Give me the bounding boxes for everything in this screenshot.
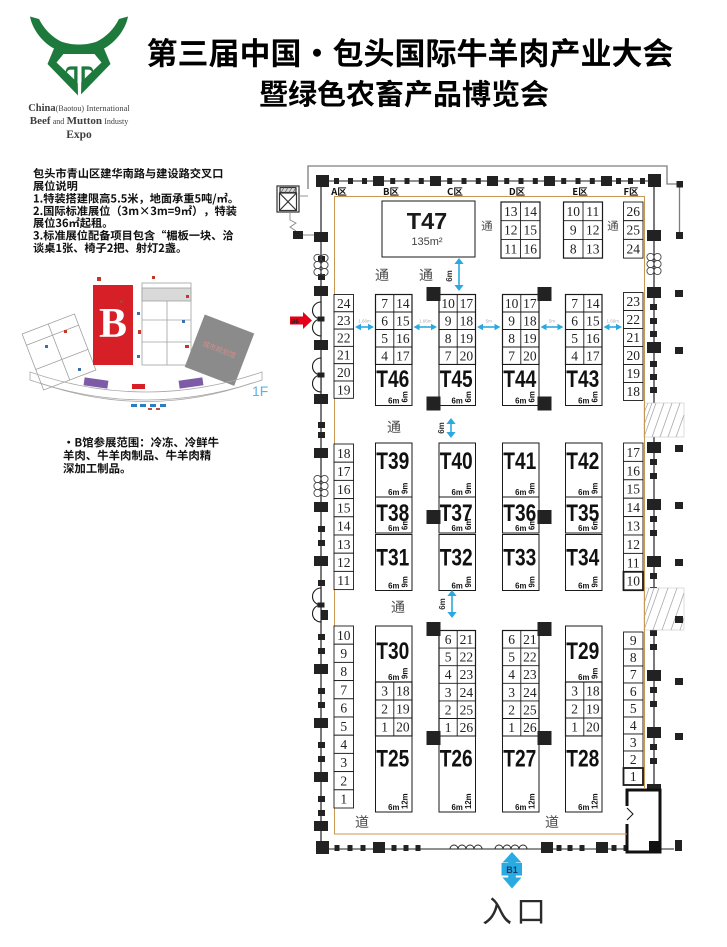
svg-text:10: 10 bbox=[566, 204, 580, 219]
svg-text:T26: T26 bbox=[440, 746, 473, 773]
svg-text:6m: 6m bbox=[388, 582, 399, 591]
svg-text:9m: 9m bbox=[528, 483, 537, 494]
svg-text:7: 7 bbox=[571, 296, 578, 311]
svg-text:12m: 12m bbox=[528, 793, 537, 809]
svg-text:7: 7 bbox=[381, 296, 388, 311]
svg-text:8: 8 bbox=[508, 331, 515, 346]
svg-text:9m: 9m bbox=[591, 668, 600, 679]
svg-text:7: 7 bbox=[445, 348, 452, 363]
svg-text:8: 8 bbox=[630, 650, 637, 665]
svg-text:23: 23 bbox=[337, 313, 351, 328]
svg-text:3: 3 bbox=[381, 684, 388, 699]
svg-text:1.66m: 1.66m bbox=[607, 319, 620, 324]
svg-text:6m: 6m bbox=[515, 488, 526, 497]
svg-text:14: 14 bbox=[337, 519, 351, 534]
svg-text:20: 20 bbox=[396, 720, 410, 735]
svg-text:21: 21 bbox=[460, 632, 474, 647]
svg-text:T44: T44 bbox=[503, 366, 537, 393]
svg-text:21: 21 bbox=[337, 348, 351, 363]
svg-text:6m: 6m bbox=[578, 524, 589, 533]
svg-text:14: 14 bbox=[523, 204, 537, 219]
svg-text:19: 19 bbox=[586, 702, 600, 717]
svg-text:12: 12 bbox=[504, 223, 518, 238]
svg-text:9: 9 bbox=[630, 633, 637, 648]
svg-text:13: 13 bbox=[504, 204, 518, 219]
svg-text:17: 17 bbox=[396, 348, 410, 363]
svg-text:9: 9 bbox=[508, 313, 515, 328]
svg-text:Expo: Expo bbox=[66, 129, 92, 141]
svg-text:3: 3 bbox=[445, 685, 452, 700]
svg-text:5m: 5m bbox=[486, 319, 493, 324]
svg-text:4: 4 bbox=[445, 667, 452, 682]
svg-text:9m: 9m bbox=[528, 576, 537, 587]
svg-text:6m: 6m bbox=[515, 524, 526, 533]
svg-text:9m: 9m bbox=[464, 576, 473, 587]
svg-text:13: 13 bbox=[337, 537, 351, 552]
svg-text:14: 14 bbox=[626, 500, 640, 515]
svg-text:T42: T42 bbox=[566, 448, 599, 475]
svg-text:9: 9 bbox=[445, 313, 452, 328]
svg-text:24: 24 bbox=[337, 296, 351, 311]
svg-text:2: 2 bbox=[445, 702, 452, 717]
svg-text:1: 1 bbox=[445, 720, 452, 735]
svg-text:24: 24 bbox=[523, 685, 537, 700]
svg-text:13: 13 bbox=[626, 519, 640, 534]
svg-text:6m: 6m bbox=[452, 524, 463, 533]
svg-text:23: 23 bbox=[626, 294, 640, 309]
svg-text:6m: 6m bbox=[401, 391, 410, 402]
svg-text:17: 17 bbox=[586, 348, 600, 363]
svg-text:19: 19 bbox=[626, 366, 640, 381]
svg-text:T46: T46 bbox=[376, 366, 409, 393]
svg-text:6m: 6m bbox=[464, 391, 473, 402]
svg-text:6m: 6m bbox=[528, 391, 537, 402]
svg-text:11: 11 bbox=[337, 573, 350, 588]
svg-text:135m²: 135m² bbox=[411, 236, 443, 248]
svg-text:T31: T31 bbox=[376, 545, 409, 572]
svg-text:6m: 6m bbox=[452, 803, 463, 812]
svg-text:14: 14 bbox=[396, 296, 410, 311]
svg-text:6m: 6m bbox=[578, 803, 589, 812]
svg-text:4: 4 bbox=[630, 718, 637, 733]
svg-text:4: 4 bbox=[340, 737, 347, 752]
svg-text:6m: 6m bbox=[578, 673, 589, 682]
svg-text:6m: 6m bbox=[401, 519, 410, 530]
svg-text:25: 25 bbox=[523, 702, 537, 717]
svg-text:5m: 5m bbox=[549, 319, 556, 324]
svg-text:6m: 6m bbox=[515, 582, 526, 591]
svg-text:22: 22 bbox=[337, 330, 351, 345]
svg-text:16: 16 bbox=[523, 241, 537, 256]
svg-text:12: 12 bbox=[626, 537, 640, 552]
svg-text:2: 2 bbox=[630, 752, 637, 767]
svg-text:5: 5 bbox=[508, 650, 515, 665]
svg-text:1: 1 bbox=[571, 720, 578, 735]
svg-text:8: 8 bbox=[340, 664, 347, 679]
svg-text:16: 16 bbox=[337, 482, 351, 497]
svg-text:16: 16 bbox=[626, 463, 640, 478]
svg-text:9m: 9m bbox=[464, 483, 473, 494]
svg-text:15: 15 bbox=[337, 500, 351, 515]
svg-text:23: 23 bbox=[523, 667, 537, 682]
svg-text:5: 5 bbox=[630, 701, 637, 716]
svg-text:15: 15 bbox=[523, 223, 537, 238]
svg-text:9m: 9m bbox=[401, 483, 410, 494]
svg-text:8: 8 bbox=[445, 331, 452, 346]
svg-text:1: 1 bbox=[340, 792, 347, 807]
svg-text:T43: T43 bbox=[566, 366, 599, 393]
svg-text:T28: T28 bbox=[566, 746, 599, 773]
svg-text:16: 16 bbox=[586, 331, 600, 346]
svg-text:6: 6 bbox=[381, 313, 388, 328]
svg-text:6m: 6m bbox=[445, 270, 454, 282]
svg-text:24: 24 bbox=[460, 685, 474, 700]
svg-text:12m: 12m bbox=[401, 793, 410, 809]
svg-text:T29: T29 bbox=[566, 638, 599, 665]
svg-text:14: 14 bbox=[586, 296, 600, 311]
svg-text:17: 17 bbox=[523, 296, 537, 311]
svg-text:B1: B1 bbox=[506, 865, 518, 875]
svg-text:12m: 12m bbox=[464, 793, 473, 809]
svg-text:B: B bbox=[99, 301, 127, 347]
svg-text:2: 2 bbox=[340, 773, 347, 788]
svg-text:T32: T32 bbox=[440, 545, 473, 572]
svg-text:B6: B6 bbox=[291, 320, 299, 326]
svg-text:7: 7 bbox=[508, 348, 515, 363]
svg-text:3: 3 bbox=[508, 685, 515, 700]
svg-text:15: 15 bbox=[396, 313, 410, 328]
svg-text:6m: 6m bbox=[515, 803, 526, 812]
svg-text:9: 9 bbox=[570, 223, 577, 238]
svg-text:6m: 6m bbox=[388, 673, 399, 682]
svg-text:T45: T45 bbox=[440, 366, 473, 393]
svg-text:18: 18 bbox=[337, 446, 351, 461]
svg-text:18: 18 bbox=[586, 684, 600, 699]
svg-text:6: 6 bbox=[340, 701, 347, 716]
svg-text:19: 19 bbox=[337, 382, 351, 397]
svg-text:Beef and Mutton Industy: Beef and Mutton Industy bbox=[30, 115, 129, 127]
svg-text:1: 1 bbox=[508, 720, 515, 735]
svg-text:25: 25 bbox=[626, 223, 640, 238]
svg-text:2: 2 bbox=[381, 702, 388, 717]
svg-text:22: 22 bbox=[460, 650, 474, 665]
svg-text:3: 3 bbox=[630, 735, 637, 750]
svg-text:9m: 9m bbox=[591, 576, 600, 587]
svg-text:3: 3 bbox=[340, 755, 347, 770]
svg-text:10: 10 bbox=[505, 296, 519, 311]
svg-text:9m: 9m bbox=[591, 483, 600, 494]
svg-text:6m: 6m bbox=[578, 488, 589, 497]
svg-text:18: 18 bbox=[396, 684, 410, 699]
svg-text:China(Baotou) International: China(Baotou) International bbox=[28, 103, 130, 114]
svg-text:11: 11 bbox=[627, 555, 640, 570]
svg-text:9m: 9m bbox=[401, 668, 410, 679]
svg-text:21: 21 bbox=[523, 632, 537, 647]
svg-text:6: 6 bbox=[630, 684, 637, 699]
svg-text:1: 1 bbox=[630, 769, 637, 784]
svg-text:7: 7 bbox=[340, 682, 347, 697]
svg-text:23: 23 bbox=[460, 667, 474, 682]
svg-text:1.66m: 1.66m bbox=[358, 319, 371, 324]
svg-text:6m: 6m bbox=[591, 391, 600, 402]
svg-text:4: 4 bbox=[381, 348, 388, 363]
svg-text:4: 4 bbox=[508, 667, 515, 682]
svg-text:6m: 6m bbox=[528, 519, 537, 530]
svg-text:1: 1 bbox=[381, 720, 388, 735]
svg-text:5: 5 bbox=[340, 719, 347, 734]
svg-text:17: 17 bbox=[460, 296, 474, 311]
svg-text:19: 19 bbox=[396, 702, 410, 717]
svg-text:10: 10 bbox=[626, 574, 640, 589]
svg-text:5: 5 bbox=[381, 331, 388, 346]
svg-text:6: 6 bbox=[508, 632, 515, 647]
svg-text:5: 5 bbox=[445, 650, 452, 665]
svg-text:20: 20 bbox=[586, 720, 600, 735]
svg-text:15: 15 bbox=[626, 482, 640, 497]
svg-text:6m: 6m bbox=[578, 397, 589, 406]
svg-text:6m: 6m bbox=[515, 397, 526, 406]
svg-text:12m: 12m bbox=[591, 793, 600, 809]
svg-text:9m: 9m bbox=[401, 576, 410, 587]
svg-text:11: 11 bbox=[586, 204, 599, 219]
svg-text:6m: 6m bbox=[438, 598, 447, 610]
svg-text:T30: T30 bbox=[376, 638, 409, 665]
svg-text:6m: 6m bbox=[452, 397, 463, 406]
svg-text:25: 25 bbox=[460, 702, 474, 717]
svg-text:6m: 6m bbox=[452, 488, 463, 497]
svg-text:13: 13 bbox=[586, 241, 600, 256]
svg-text:20: 20 bbox=[337, 365, 351, 380]
svg-text:24: 24 bbox=[626, 241, 640, 256]
svg-text:6m: 6m bbox=[388, 803, 399, 812]
svg-text:18: 18 bbox=[460, 313, 474, 328]
svg-text:10: 10 bbox=[337, 628, 351, 643]
svg-text:11: 11 bbox=[504, 241, 517, 256]
svg-text:17: 17 bbox=[626, 445, 640, 460]
svg-text:T40: T40 bbox=[440, 448, 473, 475]
svg-text:15: 15 bbox=[586, 313, 600, 328]
svg-text:26: 26 bbox=[460, 720, 474, 735]
svg-text:6m: 6m bbox=[437, 422, 446, 434]
svg-text:20: 20 bbox=[460, 348, 474, 363]
svg-text:12: 12 bbox=[586, 223, 600, 238]
svg-text:10: 10 bbox=[441, 296, 455, 311]
svg-text:9: 9 bbox=[340, 646, 347, 661]
svg-text:20: 20 bbox=[523, 348, 537, 363]
svg-text:T39: T39 bbox=[376, 448, 409, 475]
svg-text:6m: 6m bbox=[578, 582, 589, 591]
svg-text:6m: 6m bbox=[388, 524, 399, 533]
svg-text:6m: 6m bbox=[464, 519, 473, 530]
svg-text:8: 8 bbox=[570, 241, 577, 256]
svg-text:2: 2 bbox=[571, 702, 578, 717]
svg-text:T47: T47 bbox=[407, 208, 448, 234]
svg-text:5: 5 bbox=[571, 331, 578, 346]
svg-text:26: 26 bbox=[523, 720, 537, 735]
svg-text:26: 26 bbox=[626, 204, 640, 219]
svg-text:16: 16 bbox=[396, 331, 410, 346]
svg-text:19: 19 bbox=[460, 331, 474, 346]
svg-text:20: 20 bbox=[626, 348, 640, 363]
svg-text:1F: 1F bbox=[252, 383, 268, 399]
svg-text:6m: 6m bbox=[452, 582, 463, 591]
svg-text:6: 6 bbox=[445, 632, 452, 647]
svg-text:6m: 6m bbox=[388, 488, 399, 497]
svg-text:17: 17 bbox=[337, 464, 351, 479]
svg-text:6m: 6m bbox=[591, 519, 600, 530]
svg-text:T41: T41 bbox=[503, 448, 536, 475]
svg-text:21: 21 bbox=[626, 330, 640, 345]
svg-text:12: 12 bbox=[337, 555, 351, 570]
svg-text:18: 18 bbox=[523, 313, 537, 328]
svg-text:T33: T33 bbox=[503, 545, 536, 572]
svg-text:4: 4 bbox=[571, 348, 578, 363]
svg-text:T34: T34 bbox=[566, 545, 600, 572]
svg-text:1.66m: 1.66m bbox=[419, 319, 432, 324]
svg-text:19: 19 bbox=[523, 331, 537, 346]
svg-text:3: 3 bbox=[571, 684, 578, 699]
svg-text:22: 22 bbox=[523, 650, 537, 665]
svg-text:2: 2 bbox=[508, 702, 515, 717]
svg-text:6: 6 bbox=[571, 313, 578, 328]
svg-text:T25: T25 bbox=[376, 746, 409, 773]
svg-text:22: 22 bbox=[626, 312, 640, 327]
svg-text:7: 7 bbox=[630, 667, 637, 682]
svg-text:T27: T27 bbox=[503, 746, 536, 773]
svg-text:6m: 6m bbox=[388, 397, 399, 406]
svg-text:18: 18 bbox=[626, 384, 640, 399]
